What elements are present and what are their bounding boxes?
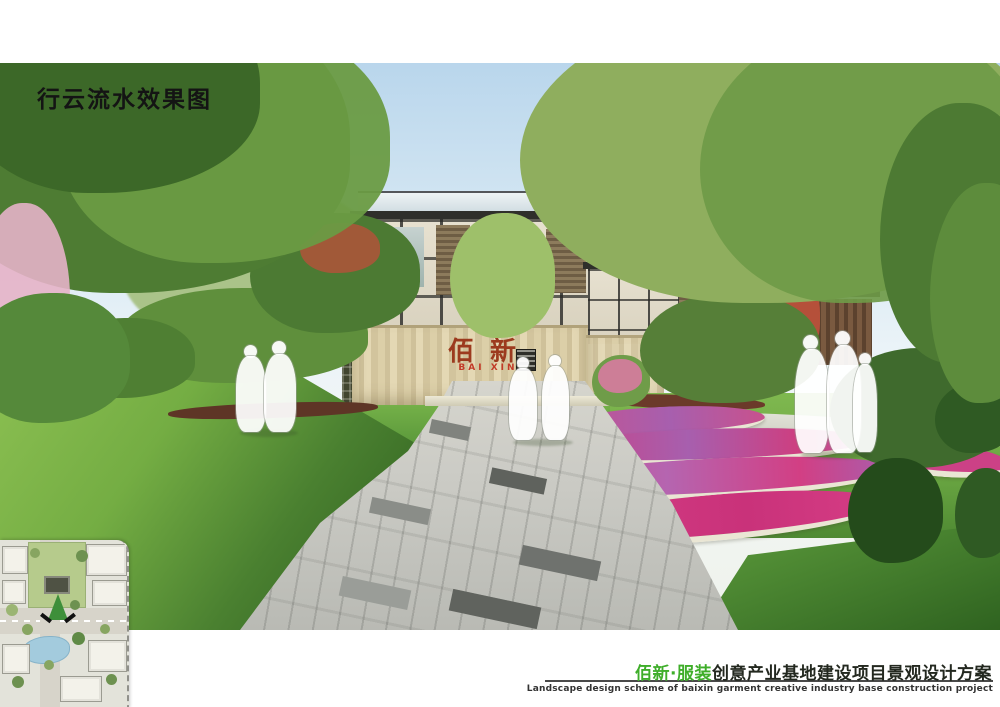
plan-building <box>2 546 28 574</box>
plan-building <box>86 544 127 576</box>
footer-project-title: 佰新·服装创意产业基地建设项目景观设计方案 <box>635 659 992 684</box>
figure-body <box>264 354 296 432</box>
figure-head <box>272 341 286 355</box>
plan-view-arrow <box>48 594 68 620</box>
figure-shadow <box>513 439 573 446</box>
visitor-silhouette-group <box>793 331 879 459</box>
sculpted-bush <box>848 458 943 563</box>
figure-head <box>835 331 850 346</box>
figure-body <box>509 368 537 440</box>
plan-building <box>88 640 127 672</box>
footer-subtitle-english: Landscape design scheme of baixin garmen… <box>527 684 993 694</box>
plan-tree <box>22 624 33 635</box>
plan-building <box>60 676 102 702</box>
figure-body <box>853 364 877 452</box>
page-title: 行云流水效果图 <box>37 80 212 114</box>
plan-gate-building <box>44 576 70 594</box>
plan-tree <box>76 550 88 562</box>
figure-body <box>795 349 829 453</box>
paving-accent <box>449 589 542 629</box>
bamboo-cluster <box>450 213 555 338</box>
figure-body <box>542 366 569 440</box>
footer-project-name: 创意产业基地建设项目景观设计方案 <box>712 664 992 684</box>
landscape-rendering: 佰新 BAI XIN <box>0 63 1000 630</box>
foreground-right-lawn <box>700 523 1000 630</box>
plan-tree <box>6 604 18 616</box>
paving-accent <box>489 467 547 494</box>
pink-flowering-shrub <box>598 359 642 393</box>
presentation-board: 佰新 BAI XIN <box>0 0 1000 707</box>
plan-tree <box>106 674 117 685</box>
plan-building <box>92 580 127 606</box>
plan-tree <box>30 548 40 558</box>
paving-accent <box>429 419 471 441</box>
plan-tree <box>12 676 24 688</box>
paving-accent <box>339 576 412 610</box>
plan-building <box>2 580 26 604</box>
plan-tree <box>100 624 110 634</box>
visitor-silhouette-couple <box>505 355 581 445</box>
site-plan-inset <box>0 540 129 707</box>
plan-tree <box>44 660 54 670</box>
plan-building <box>2 644 30 674</box>
footer-project-brand: 佰新·服装 <box>635 664 712 684</box>
plan-tree <box>70 600 80 610</box>
plan-tree <box>72 632 85 645</box>
paving-accent <box>369 497 431 525</box>
figure-body <box>236 356 266 432</box>
paving-accent <box>519 545 601 581</box>
statue-silhouette-couple <box>228 341 308 437</box>
figure-head <box>803 335 818 350</box>
